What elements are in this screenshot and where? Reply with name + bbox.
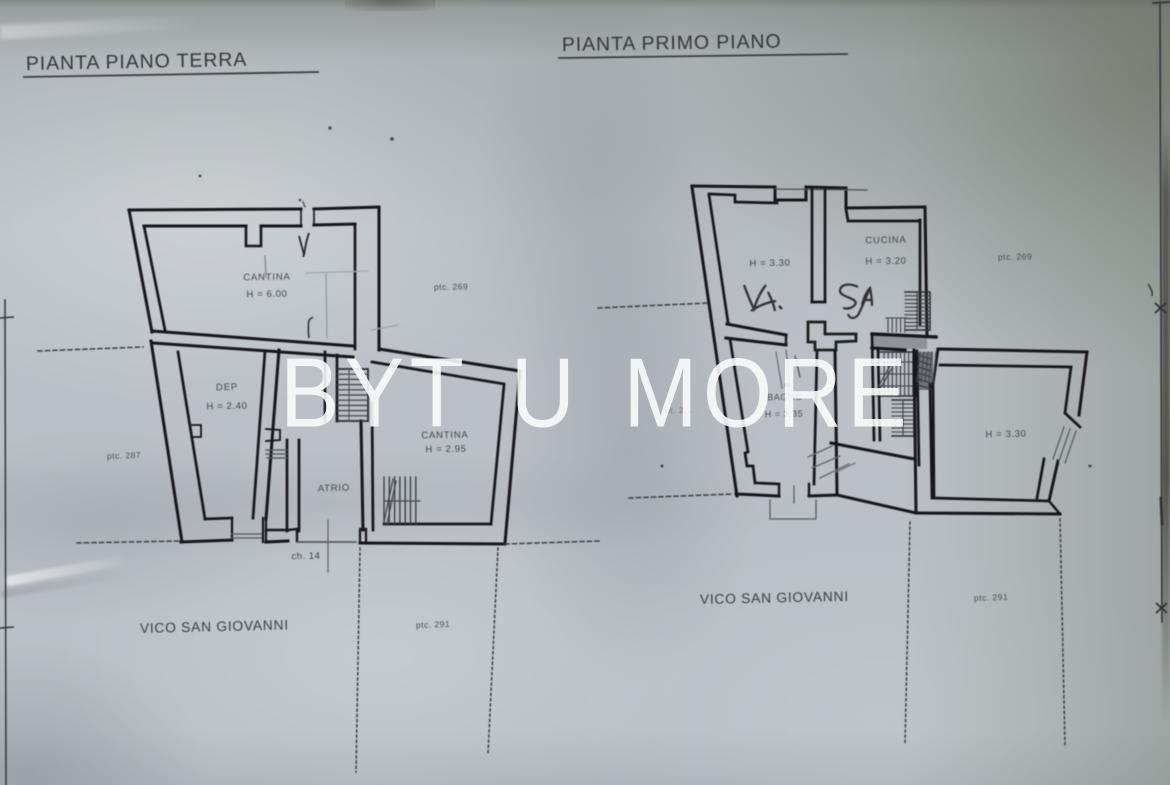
svg-text:ptc. 287: ptc. 287 — [107, 450, 142, 461]
svg-text:H = 3.20: H = 3.20 — [865, 256, 906, 268]
svg-text:ATRIO: ATRIO — [318, 482, 351, 494]
svg-text:PIANTA PRIMO PIANO: PIANTA PRIMO PIANO — [562, 31, 782, 56]
svg-text:PIANTA PIANO TERRA: PIANTA PIANO TERRA — [26, 49, 248, 75]
svg-text:H = 3.30: H = 3.30 — [749, 258, 790, 270]
svg-text:H = 3.30: H = 3.30 — [985, 429, 1026, 441]
svg-text:CANTINA: CANTINA — [243, 272, 290, 284]
svg-text:DEP: DEP — [216, 382, 238, 393]
svg-text:CUCINA: CUCINA — [865, 235, 906, 247]
svg-text:ch. 14: ch. 14 — [291, 551, 320, 563]
svg-text:VICO SAN GIOVANNI: VICO SAN GIOVANNI — [140, 617, 289, 636]
svg-text:ptc. 291: ptc. 291 — [974, 592, 1009, 603]
svg-text:ptc. 269: ptc. 269 — [434, 281, 468, 292]
svg-text:H = 6.00: H = 6.00 — [246, 289, 287, 301]
svg-text:VICO SAN GIOVANNI: VICO SAN GIOVANNI — [700, 589, 849, 607]
svg-text:H = 2.40: H = 2.40 — [206, 401, 247, 413]
svg-text:ptc. 291: ptc. 291 — [416, 619, 451, 630]
svg-text:ptc. 269: ptc. 269 — [998, 251, 1032, 262]
